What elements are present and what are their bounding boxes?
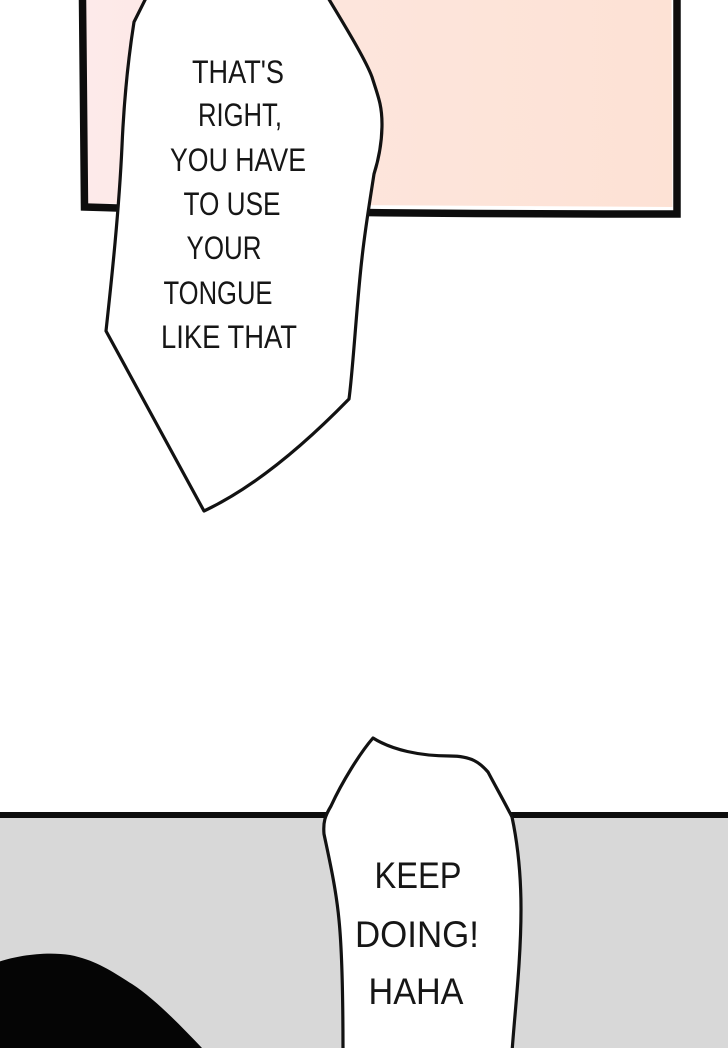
svg-text:KEEP: KEEP — [375, 855, 462, 896]
svg-text:TO USE: TO USE — [184, 186, 281, 222]
svg-text:TONGUE: TONGUE — [164, 275, 273, 311]
svg-text:HAHA: HAHA — [369, 971, 464, 1012]
svg-text:YOU HAVE: YOU HAVE — [170, 142, 306, 178]
svg-text:THAT'S: THAT'S — [192, 54, 284, 90]
svg-text:LIKE THAT: LIKE THAT — [161, 319, 297, 355]
svg-text:RIGHT,: RIGHT, — [198, 97, 282, 133]
svg-text:YOUR: YOUR — [187, 230, 262, 266]
svg-text:DOING!: DOING! — [355, 914, 479, 955]
